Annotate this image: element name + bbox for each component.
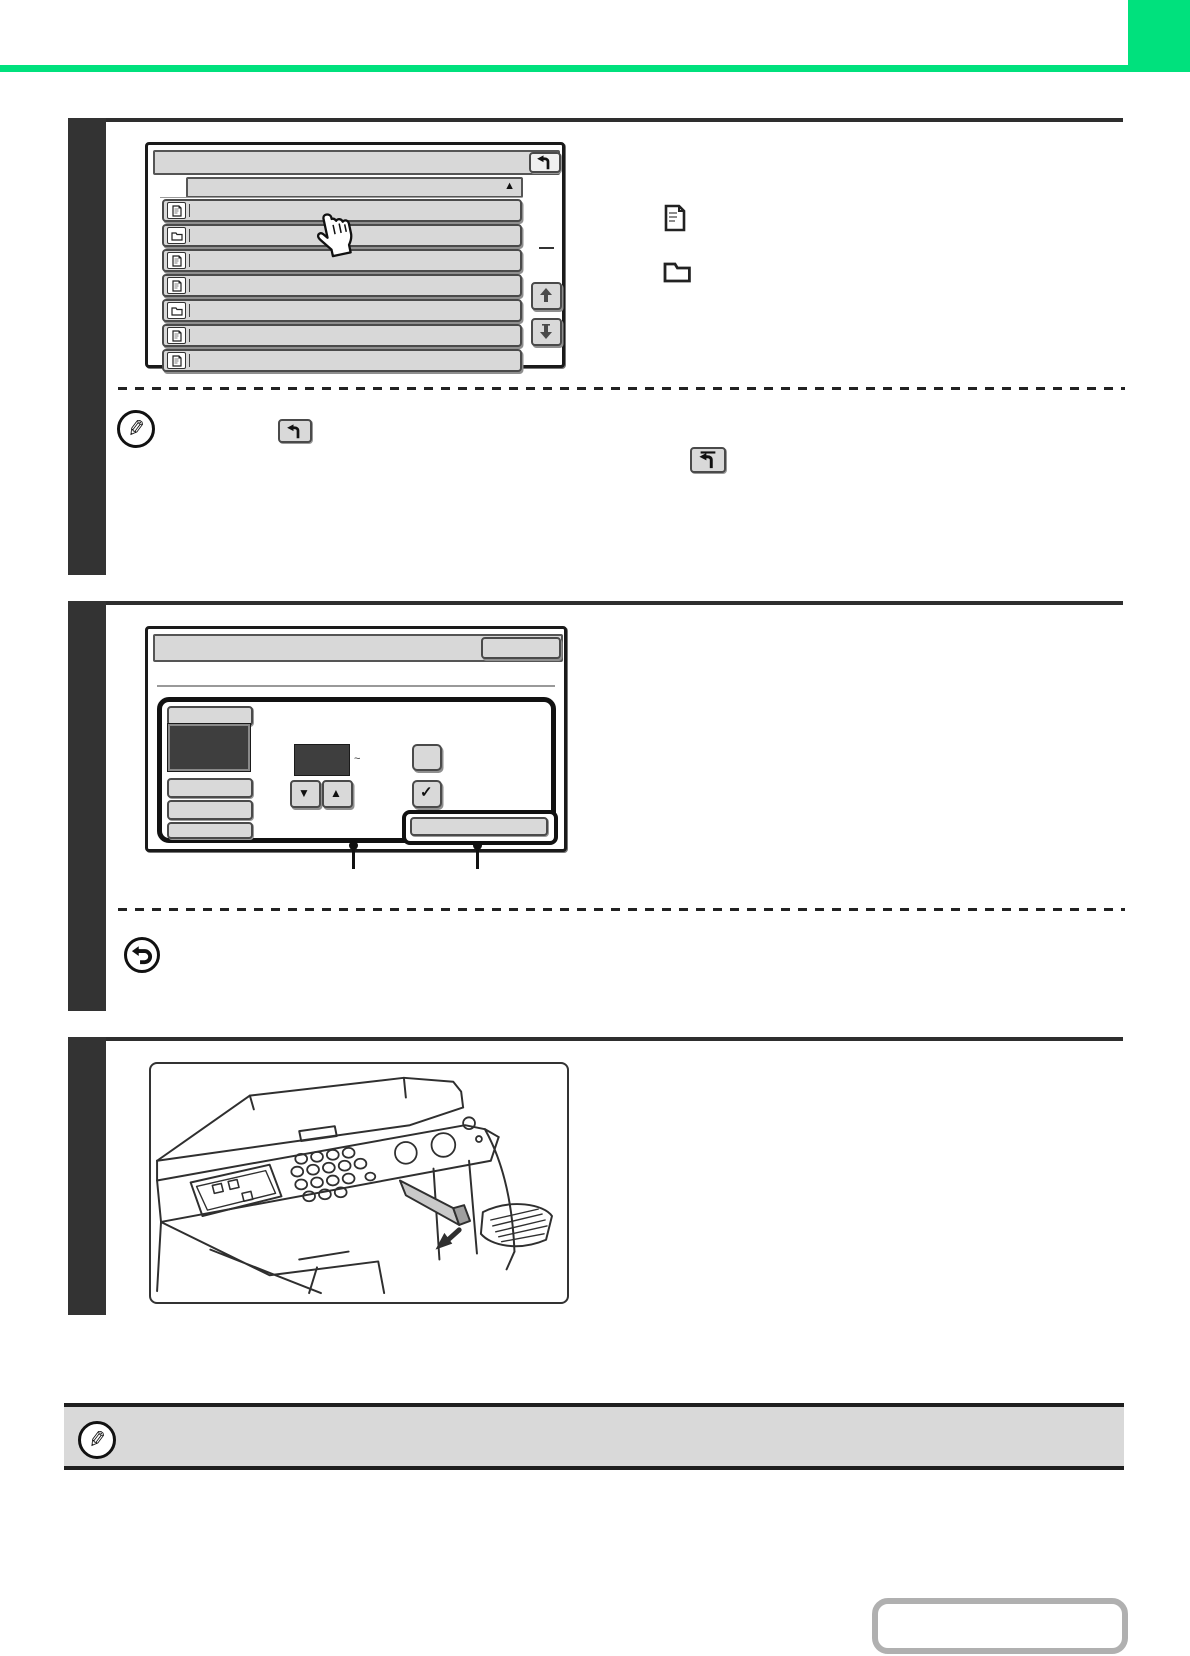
step2-rule <box>106 601 1123 605</box>
checkbox-key[interactable] <box>412 744 442 771</box>
step2-touchscreen: ~ ▼ ▲ ✓ <box>145 626 567 852</box>
folder-icon <box>167 227 186 244</box>
footer-nav-box[interactable] <box>872 1598 1128 1654</box>
screen-title-bar <box>153 150 560 175</box>
file-icon <box>167 327 186 344</box>
row-divider <box>189 279 190 292</box>
action-key[interactable] <box>410 817 548 836</box>
file-icon <box>167 352 186 369</box>
left-key-2[interactable] <box>167 800 253 820</box>
file-icon <box>167 277 186 294</box>
file-icon <box>167 202 186 219</box>
step2-number-block <box>68 601 106 1011</box>
scroll-up-icon <box>539 287 553 303</box>
increase-key[interactable]: ▲ <box>322 780 353 808</box>
row-divider <box>189 204 190 217</box>
row-divider <box>189 304 190 317</box>
file-row-7[interactable] <box>162 349 522 372</box>
triangle-up-icon: ▲ <box>330 787 342 799</box>
legend-file-icon <box>664 204 686 232</box>
footer-note-band <box>64 1403 1124 1470</box>
inline-return-up-one-level-key <box>278 419 312 443</box>
triangle-down-icon: ▼ <box>298 787 310 799</box>
header-green-corner-block <box>1128 0 1190 72</box>
row-divider <box>189 254 190 267</box>
step1-number-block <box>68 118 106 575</box>
scroll-down-icon <box>539 324 553 340</box>
file-row-6[interactable] <box>162 324 522 347</box>
step3-rule <box>106 1037 1123 1041</box>
pencil-note-icon: ✎ <box>117 410 155 448</box>
step3-number-block <box>68 1037 106 1315</box>
callout-line-1 <box>352 845 355 869</box>
return-to-root-icon <box>698 451 718 469</box>
row-divider <box>189 329 190 342</box>
manual-page: ▲ <box>0 0 1190 1656</box>
pencil-icon: ✎ <box>125 415 147 443</box>
scroll-position-mark <box>539 247 554 249</box>
back-arrow-note-icon <box>124 937 160 973</box>
header-green-rule <box>0 65 1190 72</box>
sort-bar[interactable]: ▲ <box>186 177 523 198</box>
decrease-key[interactable]: ▼ <box>290 780 321 808</box>
pencil-icon: ✎ <box>86 1426 108 1454</box>
step1-rule <box>106 118 1123 122</box>
step1-touchscreen: ▲ <box>145 142 565 368</box>
preview-display <box>167 723 251 772</box>
action-key-frame <box>402 810 558 845</box>
return-up-one-level-icon <box>536 155 554 170</box>
settings-frame: ~ ▼ ▲ ✓ <box>157 697 556 843</box>
checkmark-icon: ✓ <box>420 785 433 800</box>
step2-dashed-separator <box>118 908 1125 911</box>
header-right-key[interactable] <box>481 637 561 659</box>
file-row-5[interactable] <box>162 299 522 322</box>
inline-return-to-root-key <box>690 447 726 473</box>
back-arrow-icon <box>129 942 155 968</box>
file-row-4[interactable] <box>162 274 522 297</box>
scroll-up-key[interactable] <box>531 282 562 310</box>
left-key-3[interactable] <box>167 822 253 839</box>
usb-removal-illustration <box>149 1062 569 1304</box>
folder-icon <box>167 302 186 319</box>
callout-line-2 <box>476 845 479 869</box>
header-divider <box>157 685 555 687</box>
legend-folder-icon <box>662 258 692 284</box>
step1-dashed-separator <box>118 387 1125 390</box>
footer-pencil-note-icon: ✎ <box>78 1421 116 1459</box>
tilde-mark: ~ <box>354 754 360 765</box>
confirm-check-key[interactable]: ✓ <box>412 780 442 808</box>
return-up-one-level-key[interactable] <box>529 152 561 173</box>
scroll-down-key[interactable] <box>531 318 562 346</box>
file-icon <box>167 252 186 269</box>
number-display <box>294 744 350 776</box>
row-divider <box>189 354 190 367</box>
row-divider <box>189 229 190 242</box>
sort-ascending-icon: ▲ <box>504 181 515 192</box>
left-key-1[interactable] <box>167 778 253 798</box>
list-top-rule <box>160 197 522 198</box>
return-up-one-level-icon <box>286 424 304 439</box>
